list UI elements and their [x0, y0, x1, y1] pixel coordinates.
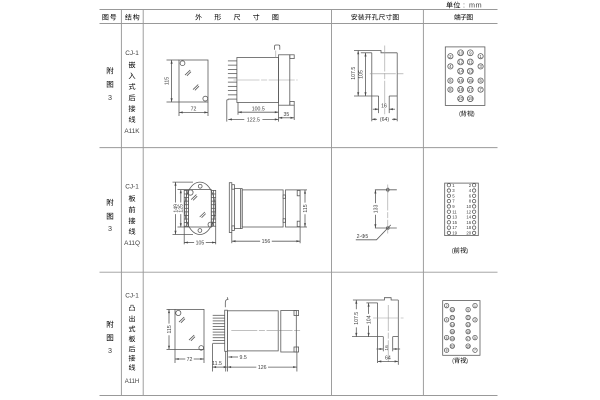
svg-text:18: 18	[450, 337, 454, 341]
svg-text:10: 10	[466, 204, 471, 209]
svg-text:11: 11	[452, 209, 457, 214]
svg-text::: :	[463, 2, 465, 9]
svg-text:19: 19	[452, 230, 457, 235]
svg-text:15: 15	[466, 330, 470, 334]
svg-text:10: 10	[450, 308, 454, 312]
svg-text:8: 8	[446, 348, 448, 352]
svg-text:12: 12	[450, 316, 454, 320]
svg-text:107.5: 107.5	[351, 67, 357, 80]
svg-text:CJ-1: CJ-1	[125, 50, 139, 57]
svg-text:125: 125	[179, 204, 185, 213]
svg-text:18: 18	[466, 225, 471, 230]
svg-text:11: 11	[468, 60, 473, 65]
svg-text:14: 14	[450, 323, 454, 327]
svg-text:20: 20	[466, 230, 471, 235]
svg-text:3: 3	[474, 318, 476, 322]
svg-text:126: 126	[258, 365, 267, 371]
svg-text:11.5: 11.5	[212, 361, 222, 367]
svg-text:): )	[466, 247, 468, 254]
svg-text:72: 72	[187, 357, 193, 363]
svg-text:): )	[466, 357, 468, 364]
svg-text:122.5: 122.5	[247, 117, 260, 123]
svg-text:17: 17	[466, 337, 470, 341]
svg-text:mm: mm	[469, 0, 482, 9]
svg-text:105: 105	[359, 70, 365, 79]
svg-text:13: 13	[452, 215, 457, 220]
svg-text:CJ-1: CJ-1	[125, 293, 139, 300]
svg-text:17: 17	[468, 87, 473, 92]
svg-text:107.5: 107.5	[354, 312, 360, 325]
svg-text:35: 35	[283, 112, 289, 118]
svg-text:20: 20	[450, 344, 454, 348]
svg-text:2-Φ5: 2-Φ5	[357, 234, 369, 240]
svg-text:12: 12	[466, 209, 471, 214]
svg-text:4: 4	[446, 318, 448, 322]
svg-text:16: 16	[384, 345, 390, 351]
svg-text:17: 17	[452, 225, 457, 230]
svg-text:20: 20	[458, 96, 463, 101]
svg-text:115: 115	[167, 325, 173, 333]
svg-text:13: 13	[468, 69, 473, 74]
svg-text:2: 2	[446, 304, 448, 308]
svg-text:CJ-1: CJ-1	[125, 184, 139, 191]
svg-text:105: 105	[196, 240, 205, 246]
svg-text:14: 14	[458, 69, 463, 74]
svg-text:16: 16	[458, 78, 463, 83]
svg-text:1: 1	[474, 304, 476, 308]
svg-text:19: 19	[466, 344, 470, 348]
svg-text:A11K: A11K	[124, 128, 140, 135]
svg-text:): )	[473, 111, 475, 118]
svg-text:7: 7	[474, 348, 476, 352]
svg-text:3: 3	[108, 346, 112, 355]
svg-text:3: 3	[108, 93, 112, 102]
svg-text:15: 15	[452, 220, 457, 225]
svg-text:15: 15	[468, 78, 473, 83]
svg-text:A11Q: A11Q	[124, 240, 140, 247]
svg-text:9: 9	[467, 308, 469, 312]
svg-text:72: 72	[191, 107, 197, 113]
svg-text:12: 12	[458, 60, 463, 65]
svg-text:13: 13	[466, 323, 470, 327]
svg-text:9.5: 9.5	[240, 355, 247, 361]
svg-text:156: 156	[262, 239, 271, 245]
svg-text:16: 16	[466, 220, 471, 225]
svg-text:3: 3	[108, 224, 112, 233]
svg-text:19: 19	[468, 96, 473, 101]
svg-text:16: 16	[450, 330, 454, 334]
svg-text:104: 104	[366, 315, 372, 324]
svg-text:A11H: A11H	[125, 379, 140, 385]
svg-text:133: 133	[373, 204, 379, 213]
svg-text:115: 115	[164, 77, 170, 85]
svg-text:6: 6	[446, 336, 448, 340]
svg-text:18: 18	[458, 87, 463, 92]
svg-text:11: 11	[466, 316, 470, 320]
svg-text:100.5: 100.5	[252, 106, 265, 112]
svg-text:5: 5	[474, 336, 476, 340]
svg-text:(64): (64)	[380, 117, 389, 123]
svg-text:64: 64	[385, 356, 391, 362]
svg-text:115: 115	[303, 204, 309, 212]
svg-text:16: 16	[381, 104, 387, 110]
svg-text:10: 10	[458, 50, 463, 55]
svg-text:14: 14	[466, 215, 471, 220]
